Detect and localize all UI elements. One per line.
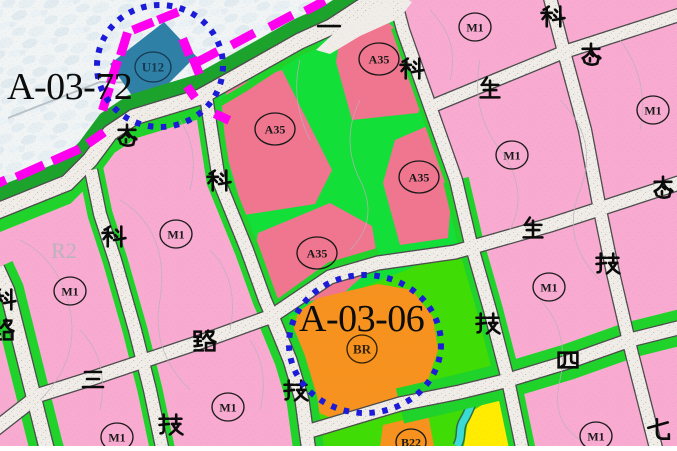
svg-text:M1: M1 xyxy=(108,430,125,444)
svg-text:M1: M1 xyxy=(167,227,184,241)
svg-text:M1: M1 xyxy=(540,280,557,294)
svg-text:M1: M1 xyxy=(587,429,604,443)
svg-text:M1: M1 xyxy=(466,20,483,34)
svg-text:M1: M1 xyxy=(219,400,236,414)
svg-text:B22: B22 xyxy=(401,435,421,446)
svg-text:A35: A35 xyxy=(369,52,390,66)
svg-text:A35: A35 xyxy=(307,246,328,260)
svg-text:BR: BR xyxy=(353,342,372,357)
svg-text:R2: R2 xyxy=(51,238,77,263)
svg-text:U12: U12 xyxy=(142,60,164,75)
svg-text:M1: M1 xyxy=(644,103,661,117)
svg-text:M1: M1 xyxy=(503,148,520,162)
svg-text:A-03-06: A-03-06 xyxy=(299,298,424,340)
svg-text:A-03-72: A-03-72 xyxy=(7,66,132,108)
svg-text:M1: M1 xyxy=(61,284,78,298)
svg-text:A35: A35 xyxy=(265,122,286,136)
svg-text:A35: A35 xyxy=(409,170,430,184)
